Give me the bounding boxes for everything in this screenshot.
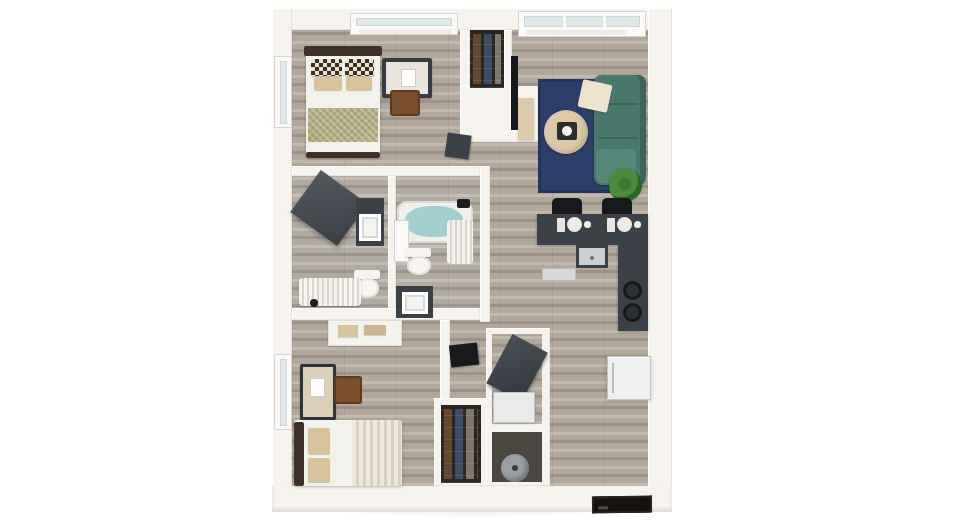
kitchen-counter-column (618, 245, 648, 331)
washer (493, 392, 535, 423)
shower-head (457, 199, 470, 208)
wall-tv-living (511, 56, 518, 130)
media-console (518, 98, 534, 140)
checkered-pillow-left (311, 59, 342, 76)
vanity-sink-a (359, 214, 381, 241)
shoe-rack-top (470, 30, 504, 88)
chair-2 (334, 376, 362, 404)
napkin-2 (607, 218, 615, 232)
window-bedroom2-left (274, 354, 292, 430)
window-living (518, 11, 646, 37)
cooktop-burner-2 (623, 303, 642, 322)
serving-tray (557, 122, 577, 140)
round-coffee-table (544, 110, 588, 154)
toilet-b-bowl (407, 256, 431, 275)
floor-plan-canvas (0, 0, 970, 526)
wall-bedroom1-closet (460, 30, 470, 92)
heater-closet-floor (492, 432, 542, 482)
vanity-a (356, 198, 384, 246)
bed-1-footboard (306, 152, 380, 158)
tan-pillow-right (346, 77, 372, 90)
potted-plant (609, 168, 642, 201)
folded-towels-2 (364, 325, 386, 335)
cup-2 (634, 221, 641, 228)
window-bedroom1-left (274, 56, 292, 128)
plate-1 (567, 217, 582, 232)
desk-chair (390, 90, 420, 116)
shoe-rack-bottom (441, 405, 481, 483)
napkin-1 (557, 218, 565, 232)
floor-drain-a (310, 299, 318, 307)
wall-tv-bedroom2 (449, 343, 479, 368)
tan-pillow-2a (308, 428, 330, 454)
headboard-1 (304, 46, 382, 56)
folded-towels-1 (338, 325, 358, 337)
shower-curtain-b (447, 220, 473, 264)
vanity-sink-b (402, 292, 428, 314)
tub-curtain-a (299, 278, 361, 306)
headboard-2 (294, 422, 304, 486)
refrigerator (607, 356, 651, 400)
bar-counter (537, 214, 648, 245)
striped-duvet (352, 420, 402, 486)
window-bedroom1 (350, 13, 458, 35)
dark-dresser (444, 132, 471, 159)
cooktop-burner-1 (623, 281, 642, 300)
tan-pillow-left (314, 77, 342, 90)
nightstand-2 (300, 364, 336, 420)
olive-throw (308, 108, 378, 142)
cup-1 (584, 221, 591, 228)
plate-2 (617, 217, 632, 232)
wall-bath-kitchen (480, 166, 490, 322)
kitchen-sink (576, 245, 608, 268)
water-heater (501, 454, 529, 482)
dishwasher (542, 268, 576, 281)
outer-wall-right (648, 8, 672, 490)
throw-blanket (577, 79, 612, 113)
wall-bath-bedroom2 (292, 308, 480, 320)
entry-door-mat (592, 495, 652, 513)
tan-pillow-2b (308, 458, 330, 482)
dresser-2 (328, 320, 402, 346)
vanity-b (396, 286, 433, 318)
checkered-pillow-right (345, 59, 374, 76)
